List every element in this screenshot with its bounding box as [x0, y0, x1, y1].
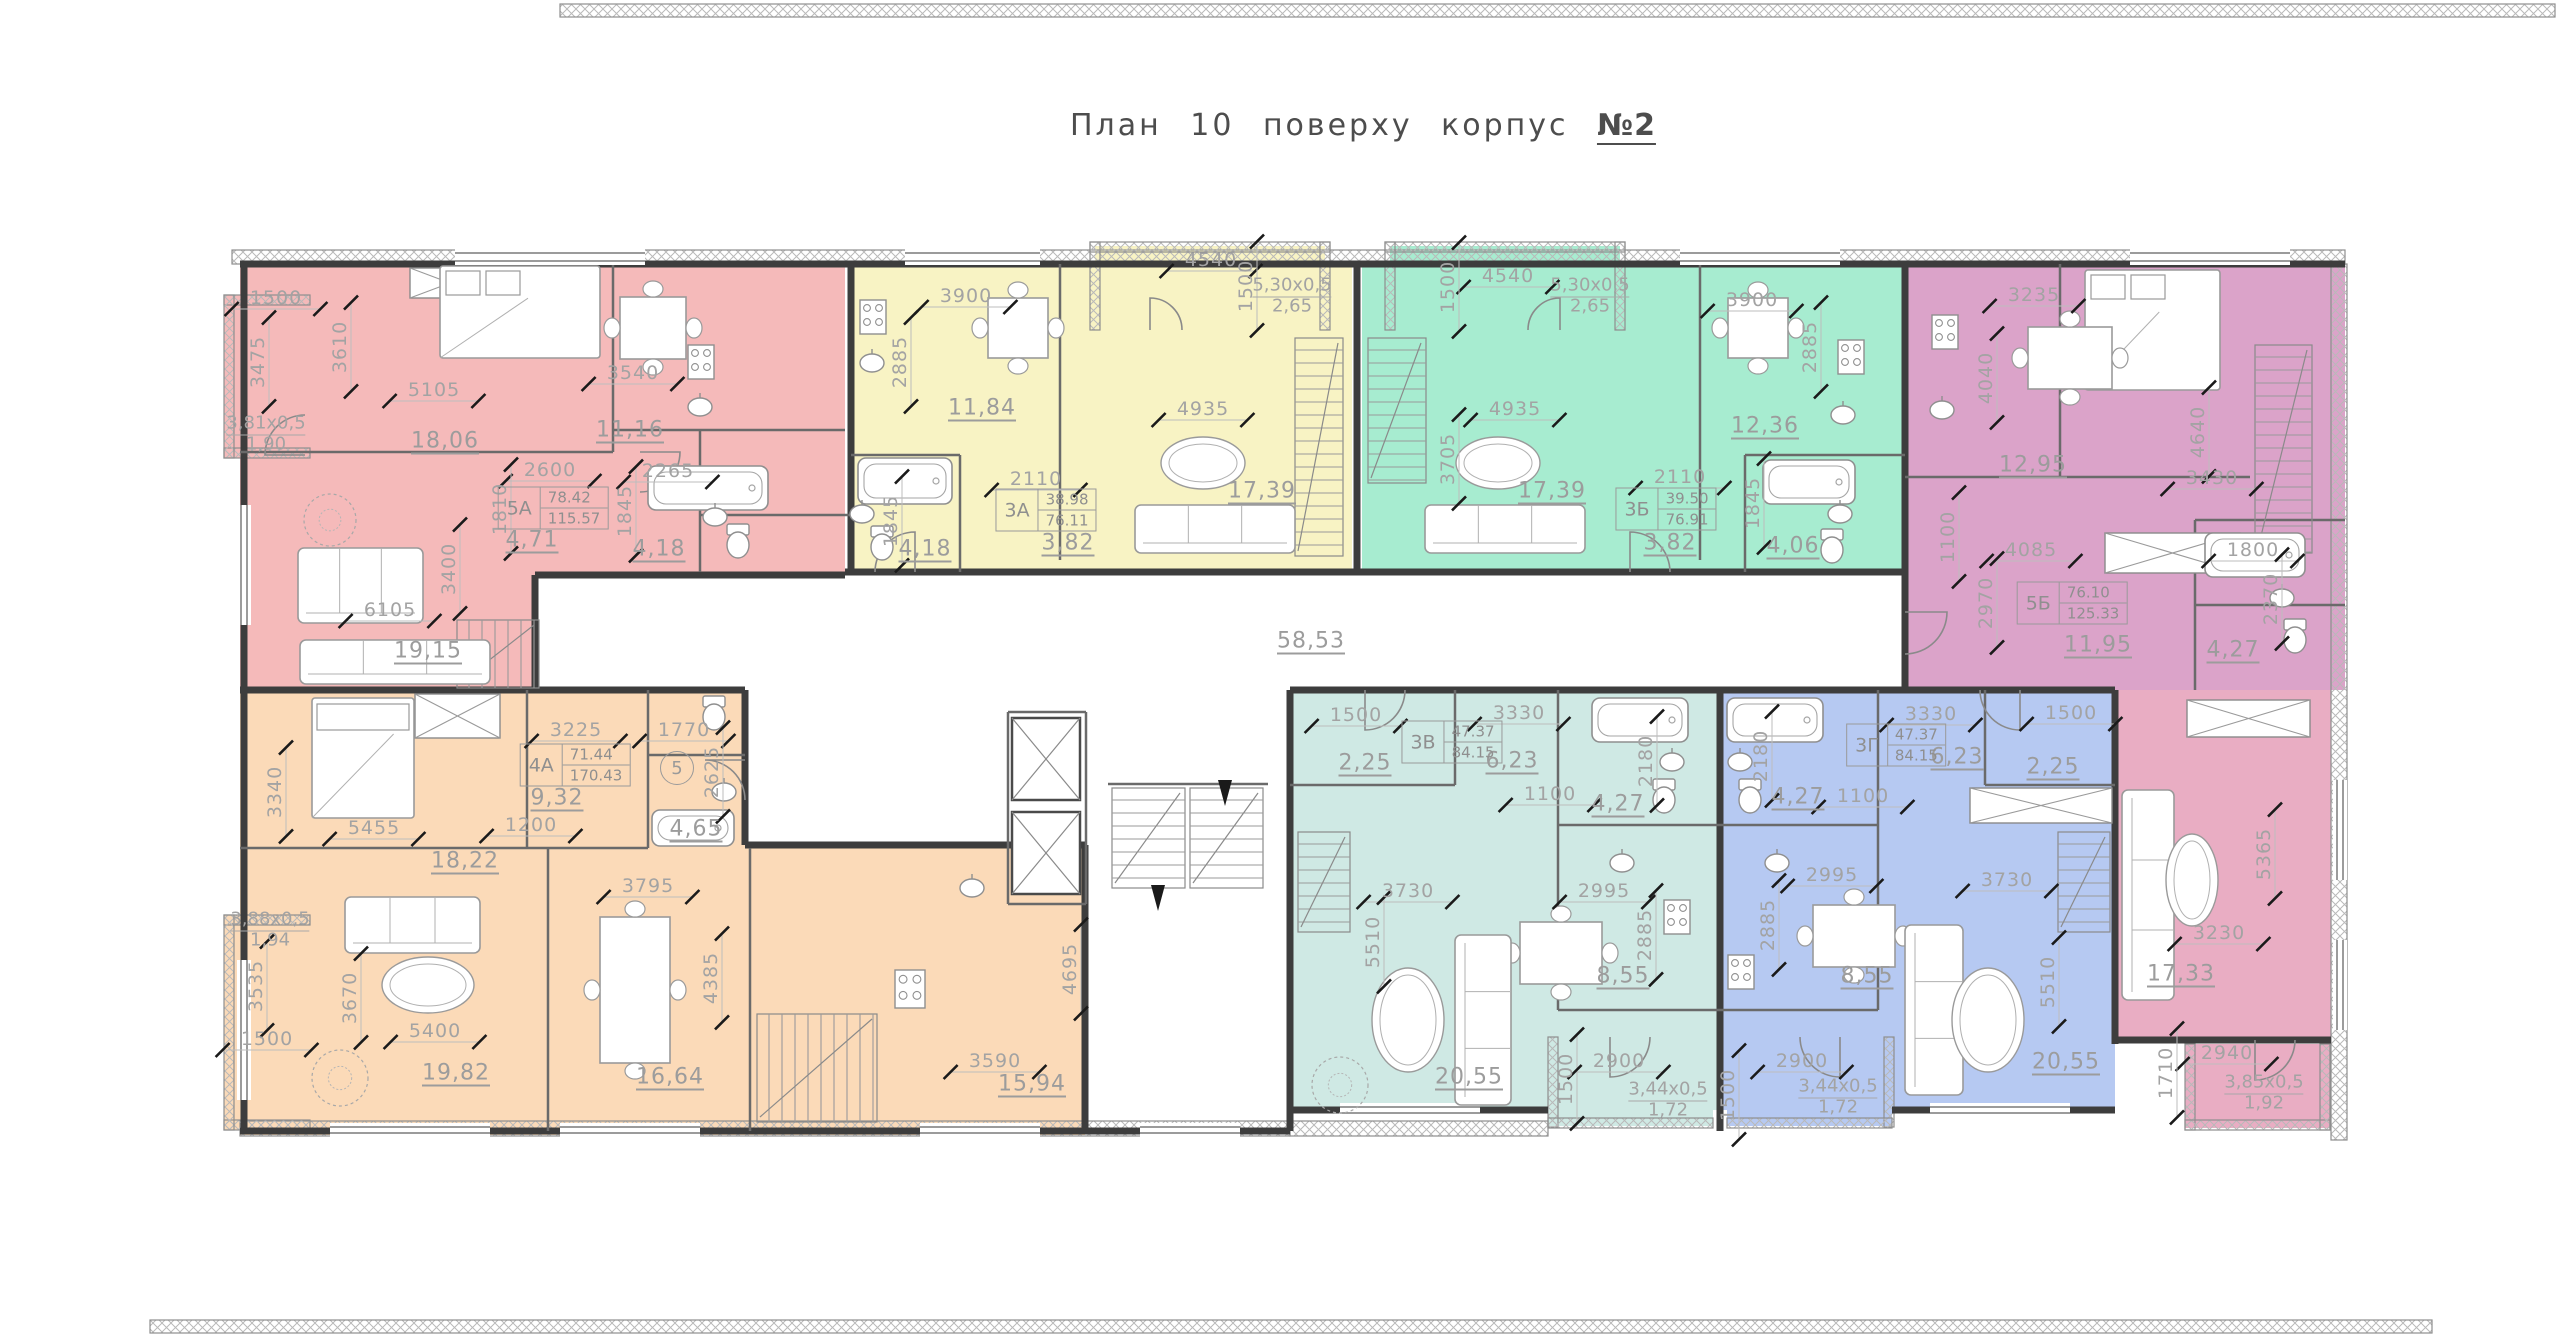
apartment-3g-balcony[interactable]	[1727, 1037, 1892, 1126]
page-title: План 10 поверху корпус №2	[1070, 108, 1656, 143]
floorplan-page: 150034753610510518,063,81х0,51,902600181…	[0, 0, 2560, 1338]
apartment-5b-balcony[interactable]	[2185, 1044, 2330, 1128]
floorplan-drawing	[0, 0, 2560, 1338]
title-text: План 10 поверху корпус	[1070, 108, 1569, 143]
title-number: №2	[1597, 108, 1656, 145]
apartment-3v-balcony[interactable]	[1548, 1037, 1713, 1126]
